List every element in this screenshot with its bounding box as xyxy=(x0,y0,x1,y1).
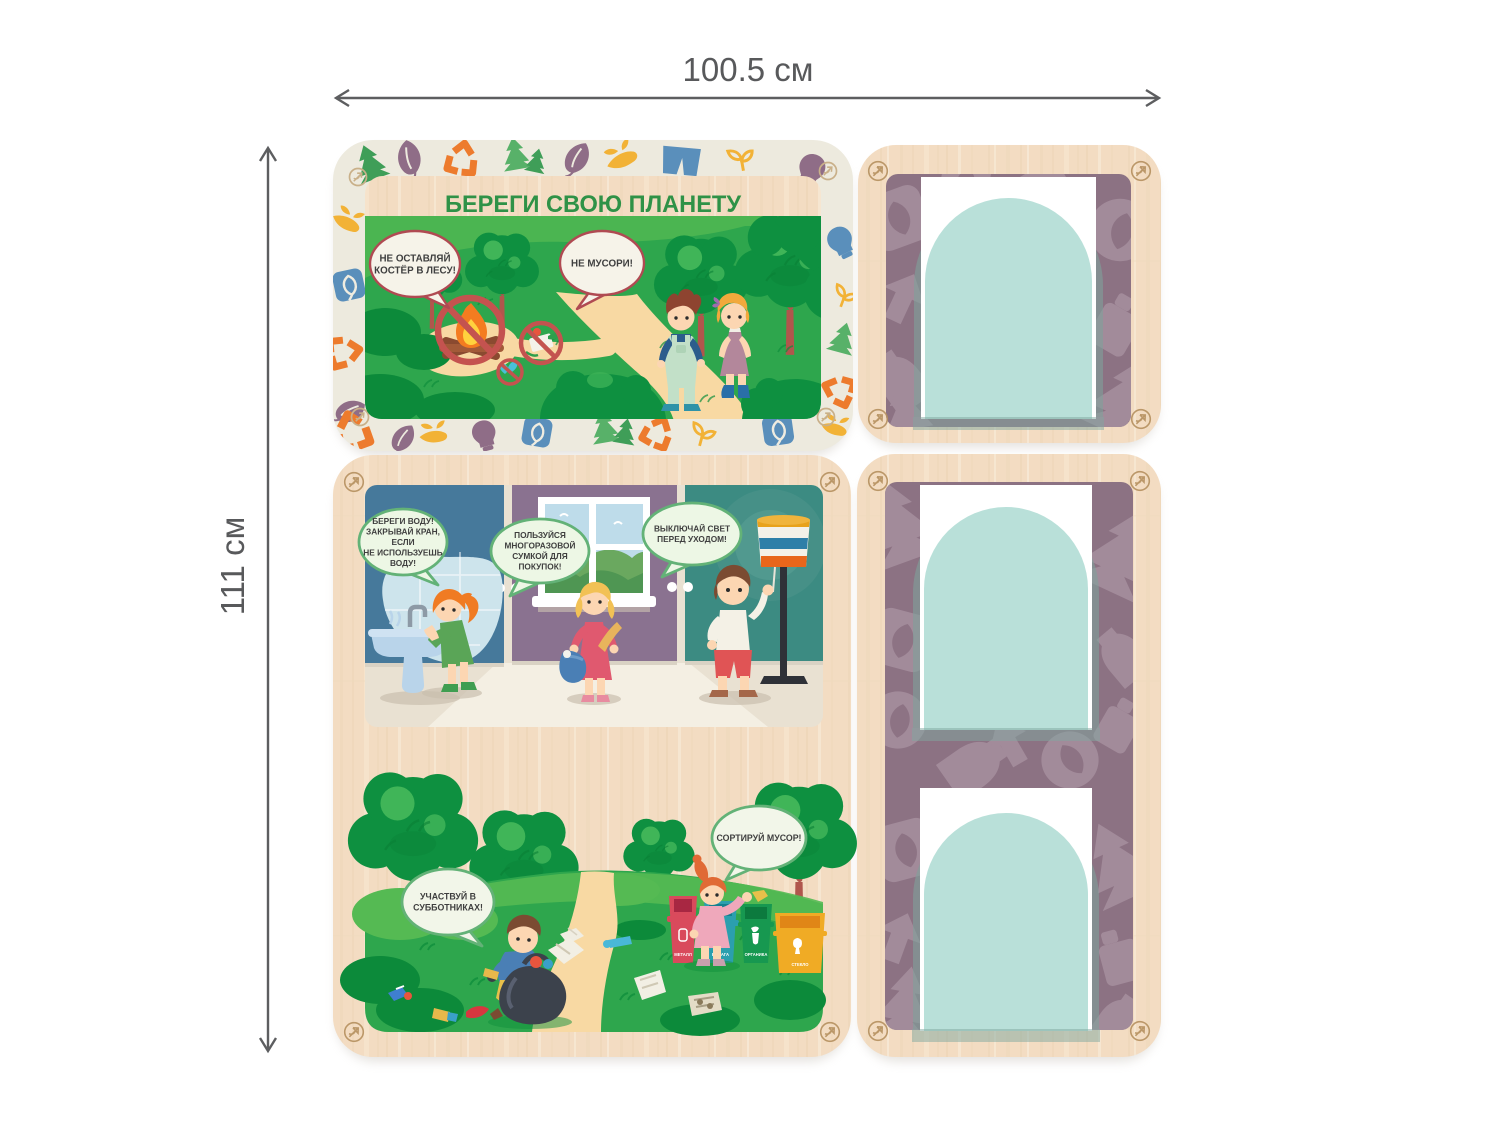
svg-text:УЧАСТВУЙ В: УЧАСТВУЙ В xyxy=(420,891,476,902)
svg-text:МНОГОРАЗОВОЙ: МНОГОРАЗОВОЙ xyxy=(505,540,576,551)
svg-text:ВЫКЛЮЧАЙ СВЕТ: ВЫКЛЮЧАЙ СВЕТ xyxy=(654,523,730,534)
svg-text:100.5 см: 100.5 см xyxy=(683,51,814,88)
svg-text:ПОЛЬЗУЙСЯ: ПОЛЬЗУЙСЯ xyxy=(514,529,566,540)
svg-text:ЕСЛИ: ЕСЛИ xyxy=(391,537,414,547)
svg-text:КОСТЁР В ЛЕСУ!: КОСТЁР В ЛЕСУ! xyxy=(374,265,456,276)
svg-text:СУББОТНИКАХ!: СУББОТНИКАХ! xyxy=(413,903,483,913)
svg-text:ПОКУПОК!: ПОКУПОК! xyxy=(518,562,561,572)
svg-text:ПЕРЕД УХОДОМ!: ПЕРЕД УХОДОМ! xyxy=(657,534,727,544)
svg-text:СОРТИРУЙ МУСОР!: СОРТИРУЙ МУСОР! xyxy=(717,832,802,843)
svg-text:НЕ МУСОРИ!: НЕ МУСОРИ! xyxy=(571,258,633,269)
svg-text:НЕ ИСПОЛЬЗУЕШЬ: НЕ ИСПОЛЬЗУЕШЬ xyxy=(363,547,442,557)
svg-text:СТЕКЛО: СТЕКЛО xyxy=(791,962,809,967)
svg-text:МЕТАЛЛ: МЕТАЛЛ xyxy=(674,952,692,957)
svg-text:СУМКОЙ ДЛЯ: СУМКОЙ ДЛЯ xyxy=(512,550,567,561)
svg-text:БЕРЕГИ ВОДУ!: БЕРЕГИ ВОДУ! xyxy=(372,516,434,526)
svg-text:НЕ ОСТАВЛЯЙ: НЕ ОСТАВЛЯЙ xyxy=(379,252,450,264)
svg-text:ЗАКРЫВАЙ КРАН,: ЗАКРЫВАЙ КРАН, xyxy=(366,525,440,536)
svg-text:БЕРЕГИ СВОЮ ПЛАНЕТУ: БЕРЕГИ СВОЮ ПЛАНЕТУ xyxy=(445,191,742,218)
svg-text:ОРГАНИКА: ОРГАНИКА xyxy=(745,952,768,957)
svg-text:ВОДУ!: ВОДУ! xyxy=(390,558,416,568)
svg-text:111 см: 111 см xyxy=(214,517,251,616)
